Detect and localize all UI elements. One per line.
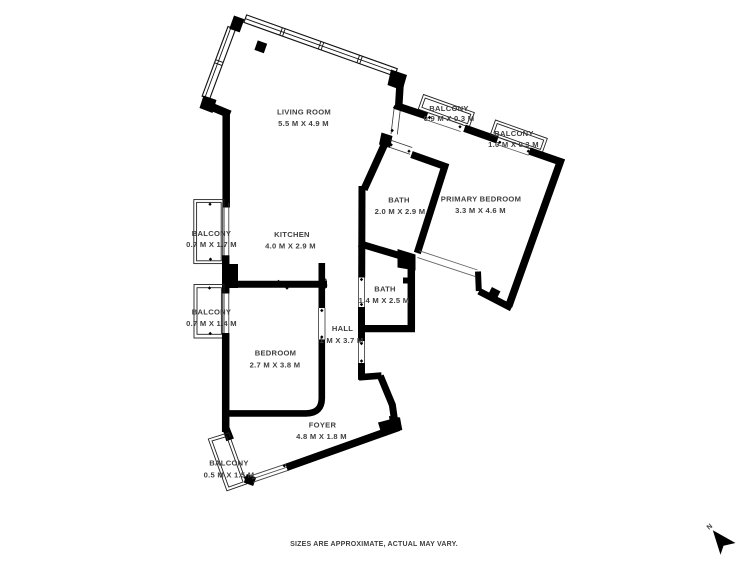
svg-text:BALCONY: BALCONY: [494, 129, 533, 138]
svg-text:2.7 M X 3.8 M: 2.7 M X 3.8 M: [250, 361, 301, 370]
svg-text:4.0 M X 2.9 M: 4.0 M X 2.9 M: [265, 242, 316, 251]
svg-text:BEDROOM: BEDROOM: [255, 349, 297, 358]
svg-text:4.8 M X 1.8 M: 4.8 M X 1.8 M: [296, 432, 347, 441]
svg-text:BALCONY: BALCONY: [192, 229, 231, 238]
svg-text:LIVING ROOM: LIVING ROOM: [277, 108, 331, 117]
svg-text:0.5 M X 1.5 M: 0.5 M X 1.5 M: [204, 471, 255, 480]
svg-text:0.7 M X 1.4 M: 0.7 M X 1.4 M: [186, 319, 237, 328]
svg-text:BATH: BATH: [388, 196, 410, 205]
svg-text:PRIMARY BEDROOM: PRIMARY BEDROOM: [441, 195, 521, 204]
svg-text:BALCONY: BALCONY: [209, 459, 248, 468]
svg-text:0.7 M X 1.7 M: 0.7 M X 1.7 M: [186, 240, 237, 249]
svg-text:HALL: HALL: [332, 324, 353, 333]
svg-text:0.9 M X 0.3 M: 0.9 M X 0.3 M: [424, 114, 475, 123]
svg-text:FOYER: FOYER: [309, 421, 337, 430]
svg-text:BALCONY: BALCONY: [192, 308, 231, 317]
svg-text:1 M X 3.7 M: 1 M X 3.7 M: [320, 336, 364, 345]
svg-text:5.5 M X 4.9 M: 5.5 M X 4.9 M: [278, 119, 329, 128]
svg-text:KITCHEN: KITCHEN: [274, 230, 310, 239]
svg-text:BALCONY: BALCONY: [429, 104, 468, 113]
svg-text:1.4 M X 2.5 M: 1.4 M X 2.5 M: [359, 296, 410, 305]
svg-text:2.0 M X 2.9 M: 2.0 M X 2.9 M: [375, 207, 426, 216]
svg-text:SIZES ARE APPROXIMATE, ACTUAL: SIZES ARE APPROXIMATE, ACTUAL MAY VARY.: [290, 541, 458, 548]
svg-text:3.3 M X 4.6 M: 3.3 M X 4.6 M: [455, 206, 506, 215]
svg-text:1.0 M X 0.3 M: 1.0 M X 0.3 M: [488, 140, 539, 149]
svg-text:BATH: BATH: [374, 285, 396, 294]
